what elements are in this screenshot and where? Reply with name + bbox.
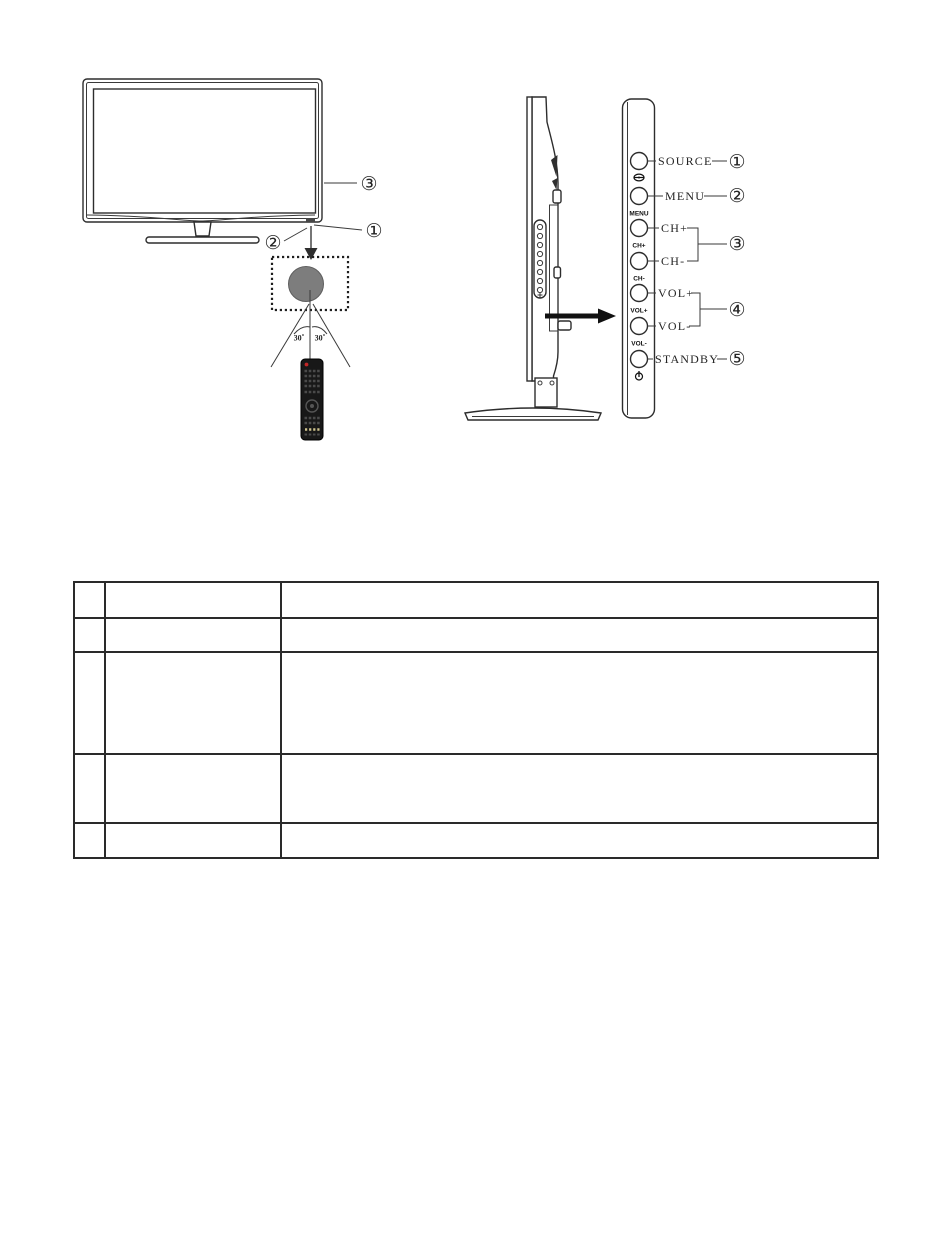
ch-plus-label: CH+ — [661, 221, 688, 235]
tv-side-view-diagram — [465, 97, 616, 420]
side-button-panel: MENU CH+ CH- VOL+ VOL- SOURCE MENU CH+ C… — [623, 99, 746, 418]
menu-button — [631, 188, 648, 205]
diagrams: ③ ① ② 30˚ 30˚ — [0, 0, 950, 470]
strip-label-menu: MENU — [629, 211, 648, 218]
ch-plus-button — [631, 220, 648, 237]
standby-button — [631, 351, 648, 368]
table-cell — [105, 754, 281, 823]
ir-sensor-mark — [306, 218, 315, 222]
table-cell — [74, 823, 105, 858]
callout-line-speaker — [284, 228, 307, 241]
remote-control — [301, 359, 323, 440]
callout-source: ① — [728, 151, 745, 173]
callout-volume: ④ — [728, 299, 745, 321]
tv-front-stand-neck — [194, 222, 211, 236]
tv-front-view-diagram: ③ ① ② 30˚ 30˚ — [83, 79, 383, 440]
angle-left-label: 30˚ — [294, 334, 305, 343]
source-button — [631, 153, 648, 170]
menu-label: MENU — [665, 189, 705, 203]
strip-label-ch-minus: CH- — [633, 276, 645, 283]
remote-dpad-ok — [310, 404, 314, 408]
table-cell — [74, 582, 105, 618]
callout-bezel: ③ — [360, 173, 377, 195]
table-cell — [281, 754, 878, 823]
ir-zoom-arrow-head — [305, 248, 318, 260]
table-cell — [281, 582, 878, 618]
table-cell — [105, 652, 281, 754]
vol-minus-label: VOL- — [658, 319, 691, 333]
table-cell — [281, 618, 878, 652]
tv-side-front-slab — [527, 97, 532, 381]
strip-label-vol-plus: VOL+ — [630, 308, 647, 315]
strip-label-vol-minus: VOL- — [631, 341, 647, 348]
tv-side-tab — [554, 267, 561, 278]
table-cell — [281, 823, 878, 858]
tv-front-screen — [94, 89, 316, 213]
connector-strip-outline — [534, 220, 546, 298]
standby-label: STANDBY — [655, 352, 719, 366]
channel-bracket — [687, 228, 698, 261]
table-row — [74, 618, 878, 652]
table-cell — [74, 754, 105, 823]
table-cell — [105, 618, 281, 652]
side-connector-strip — [534, 220, 546, 298]
table-row — [74, 754, 878, 823]
tv-side-mount-screw — [558, 321, 571, 330]
vol-plus-label: VOL+ — [658, 286, 694, 300]
table-cell — [74, 618, 105, 652]
callout-ir-sensor: ① — [365, 220, 382, 242]
ch-minus-button — [631, 253, 648, 270]
callout-speaker: ② — [264, 232, 281, 254]
strip-label-ch-plus: CH+ — [632, 243, 645, 250]
table-cell — [74, 652, 105, 754]
angle-right-label: 30˚ — [315, 334, 326, 343]
remote-power-button — [305, 363, 309, 367]
vol-plus-button — [631, 285, 648, 302]
callout-menu: ② — [728, 185, 745, 207]
manual-page: ③ ① ② 30˚ 30˚ — [0, 0, 950, 1244]
tv-side-stand — [465, 378, 601, 420]
vol-minus-button — [631, 318, 648, 335]
table-cell — [105, 582, 281, 618]
callout-channel: ③ — [728, 233, 745, 255]
parts-table — [73, 581, 879, 859]
tv-side-tab — [553, 190, 561, 203]
stand-base — [465, 408, 601, 420]
table-row — [74, 823, 878, 858]
callout-standby: ⑤ — [728, 348, 745, 370]
table-row — [74, 582, 878, 618]
table-row — [74, 652, 878, 754]
ir-sensor-circle — [289, 267, 324, 302]
tv-front-stand-base — [146, 237, 259, 243]
table-cell — [281, 652, 878, 754]
callout-line-ir-sensor — [314, 225, 362, 230]
ch-minus-label: CH- — [661, 254, 685, 268]
source-label: SOURCE — [658, 154, 713, 168]
panel-pointer-arrow-head — [598, 309, 616, 324]
table-cell — [105, 823, 281, 858]
